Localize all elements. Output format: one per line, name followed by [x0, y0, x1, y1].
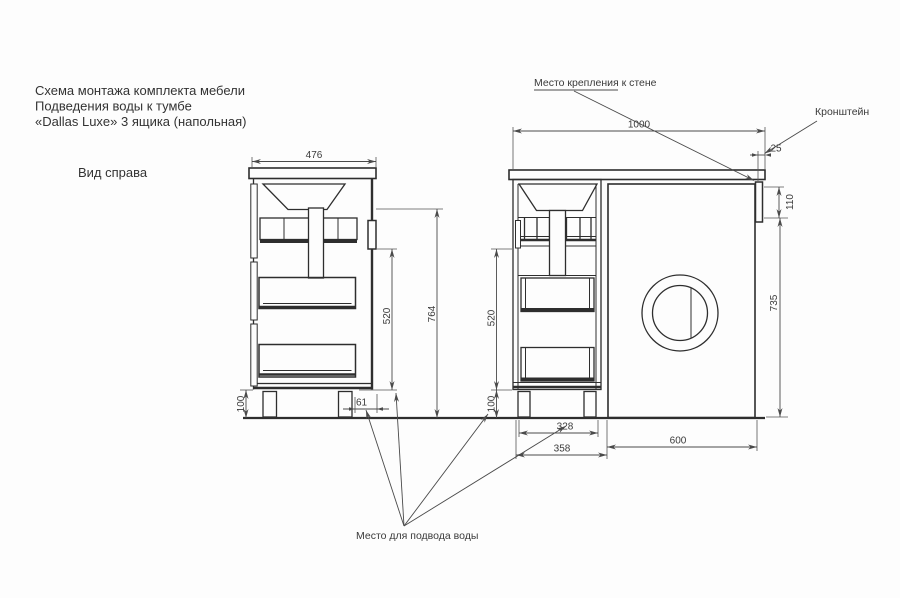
wall-mount-label: Место крепления к стене [534, 77, 657, 89]
dim-machine-width: 600 [607, 420, 757, 451]
dim-110-label: 110 [785, 194, 796, 210]
drain-pipe-side [309, 208, 324, 278]
drawer-box-3-side [259, 345, 356, 378]
dim-1000-label: 1000 [628, 120, 651, 131]
leg-left-front [518, 392, 530, 418]
dim-520-side-label: 520 [382, 307, 393, 324]
leader-water-supply: Место для подвода воды [356, 393, 566, 542]
dim-plinth-side: 100 [236, 390, 253, 418]
dim-520-front-label: 520 [487, 309, 498, 326]
leg-rear-side [339, 392, 353, 418]
dim-cabinet-width: 328 [519, 420, 598, 437]
dim-drain-height-front: 520 [487, 249, 513, 390]
dim-61-label: 61 [356, 398, 368, 409]
drawer-box-1-front [521, 278, 594, 312]
assembly-drawing: Схема монтажа комплекта мебели Подведени… [0, 0, 900, 598]
dim-side-width: 476 [252, 150, 376, 168]
water-bracket-front [516, 221, 521, 249]
leg-right-front [584, 392, 596, 418]
title-line-3: «Dallas Luxe» 3 ящика (напольная) [35, 114, 247, 129]
dim-bracket-height: 110 [764, 187, 796, 218]
dim-476-label: 476 [306, 150, 323, 161]
dim-machine-height: 735 [766, 218, 788, 417]
side-view-cabinet [249, 168, 376, 417]
drawer-box-2-front-walls [526, 348, 590, 382]
title-block: Схема монтажа комплекта мебели Подведени… [35, 83, 247, 180]
title-line-2: Подведения воды к тумбе [35, 99, 192, 114]
drain-pipe-front [550, 211, 566, 276]
dim-plinth-front: 100 [487, 390, 498, 418]
dim-drain-height-side: 520 [359, 249, 397, 390]
leg-front-side [263, 392, 277, 418]
water-supply-label: Место для подвода воды [356, 530, 478, 542]
view-label: Вид справа [78, 165, 148, 180]
front-view [509, 170, 765, 418]
drawer-front-1 [251, 184, 257, 258]
bracket-label: Кронштейн [815, 106, 869, 118]
dim-735-label: 735 [769, 294, 780, 311]
countertop-side [249, 168, 376, 179]
drawer-front-3 [251, 324, 257, 386]
dim-764-label: 764 [427, 305, 438, 322]
water-bracket-side [368, 221, 376, 250]
countertop-front [509, 170, 765, 180]
sink-basin-front [519, 184, 597, 211]
dim-358-label: 358 [554, 444, 571, 455]
drawer-front-2 [251, 262, 257, 320]
dim-100-side-label: 100 [236, 395, 247, 412]
dim-100-front-label: 100 [487, 395, 498, 412]
dim-total-width: 1000 [513, 120, 765, 170]
dim-600-label: 600 [670, 436, 687, 447]
drawer-box-2-front [521, 348, 594, 382]
title-line-1: Схема монтажа комплекта мебели [35, 83, 245, 98]
washing-machine [608, 184, 755, 418]
wall-bracket [756, 182, 763, 222]
drawing-sheet: Схема монтажа комплекта мебели Подведени… [0, 0, 900, 598]
drawer-box-1-front-walls [526, 278, 590, 312]
